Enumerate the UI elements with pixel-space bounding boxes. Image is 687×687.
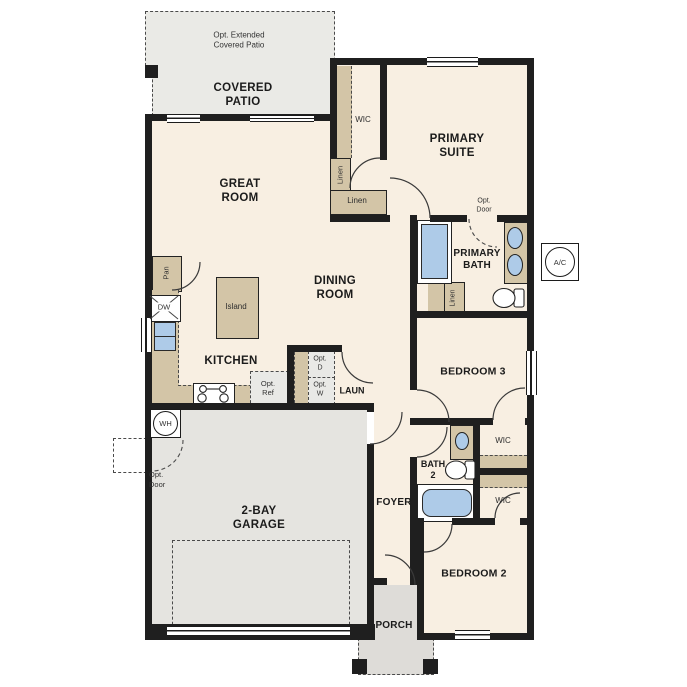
wall-laundry-west: [287, 345, 294, 410]
linen-tall-label: Linen: [335, 166, 344, 184]
wall-patio-right: [330, 58, 337, 158]
primary-bath-label: PRIMARY BATH: [453, 248, 500, 272]
opt-washer-label: Opt. W: [313, 381, 326, 398]
primary-wic-label: WIC: [355, 115, 371, 125]
wall-left: [145, 114, 152, 640]
sliding-door-patio: [250, 115, 314, 122]
bath-linen-label: Linen: [450, 289, 459, 306]
wall-suite-south-a: [330, 215, 390, 222]
porch-post-right: [423, 659, 438, 674]
porch-label: PORCH: [375, 620, 412, 632]
primary-suite-label: PRIMARY SUITE: [430, 132, 485, 160]
opt-door-bath-label: Opt. Door: [476, 197, 491, 214]
bedroom3-label: BEDROOM 3: [440, 366, 505, 379]
laundry-label: LAUN: [340, 386, 365, 397]
kitchen-label: KITCHEN: [204, 354, 257, 368]
window-kitchen-sink: [141, 318, 152, 352]
window-great-room: [167, 114, 200, 123]
foyer-label: FOYER: [376, 497, 411, 509]
ac-unit-box: A/C: [541, 243, 579, 281]
wall-patio-corner: [145, 65, 158, 78]
wic3-shelf: [480, 455, 527, 469]
wall-suite-south-c: [497, 215, 534, 222]
wall-garage-east-a: [367, 403, 374, 412]
shower: [421, 224, 448, 279]
opt-extended-patio-label: Opt. Extended Covered Patio: [213, 30, 264, 50]
garage-label: 2-BAY GARAGE: [233, 504, 285, 532]
bath-linen-shelf: [428, 282, 445, 314]
primary-vanity: [504, 222, 529, 284]
covered-patio-label: COVERED PATIO: [214, 81, 273, 109]
ac-unit-circle: A/C: [545, 247, 575, 277]
wall-bed3-south-b: [525, 418, 534, 425]
kitchen-sink-basin-2: [154, 336, 176, 351]
wall-foyer-south: [367, 578, 387, 585]
wic-bedroom3-label: WIC: [495, 436, 511, 446]
wall-bed3-south-a: [410, 418, 493, 425]
dining-room-label: DINING ROOM: [314, 274, 356, 302]
island-label: Island: [225, 302, 246, 312]
floor-plan: WH A/C Opt. Extended Covered Patio COVER…: [0, 0, 687, 687]
garage-door: [167, 626, 350, 636]
wall-laundry-top: [287, 345, 342, 352]
wall-bed2-west: [417, 518, 424, 640]
porch-post-left: [352, 659, 367, 674]
bath2-label: BATH 2: [421, 459, 445, 481]
ac-unit-label: A/C: [554, 258, 567, 267]
wall-garage-east-b: [367, 444, 374, 640]
wall-foyer-east: [410, 457, 417, 585]
bedroom2-label: BEDROOM 2: [441, 568, 506, 581]
water-heater-box: WH: [150, 409, 181, 438]
wall-bath-west: [410, 215, 417, 322]
dishwasher-label: DW: [157, 302, 172, 311]
wall-suite-south-b: [430, 215, 467, 222]
wall-right: [527, 58, 534, 640]
water-heater-circle: WH: [153, 411, 178, 436]
window-primary-suite: [427, 57, 478, 67]
linen-closet-label: Linen: [347, 196, 367, 206]
wall-hall-east-upper: [410, 322, 417, 390]
wic-bedroom2-label: WIC: [495, 496, 511, 506]
garage-door-dashed-area: [172, 540, 350, 635]
wall-bed2-north-b: [452, 518, 495, 525]
window-bedroom2: [455, 630, 490, 640]
primary-wic-shelf: [337, 66, 352, 158]
window-bedroom3: [526, 351, 537, 395]
great-room-label: GREAT ROOM: [220, 177, 261, 205]
kitchen-sink-basin-1: [154, 322, 176, 337]
wall-wic-suite: [380, 65, 387, 160]
wall-bed2-north-c: [520, 518, 534, 525]
opt-door-garage-label: Opt. Door: [149, 470, 165, 490]
wall-wic-divider: [473, 468, 534, 475]
opt-dryer-label: Opt. D: [313, 355, 326, 372]
wic2-shelf: [480, 474, 527, 488]
bathtub: [422, 489, 472, 517]
opt-ref-label: Opt. Ref: [261, 379, 275, 397]
pantry-label: Pan: [161, 266, 170, 279]
laundry-cabinet: [294, 352, 309, 403]
water-heater-label: WH: [159, 419, 172, 428]
wall-bath-bed3: [410, 311, 534, 318]
